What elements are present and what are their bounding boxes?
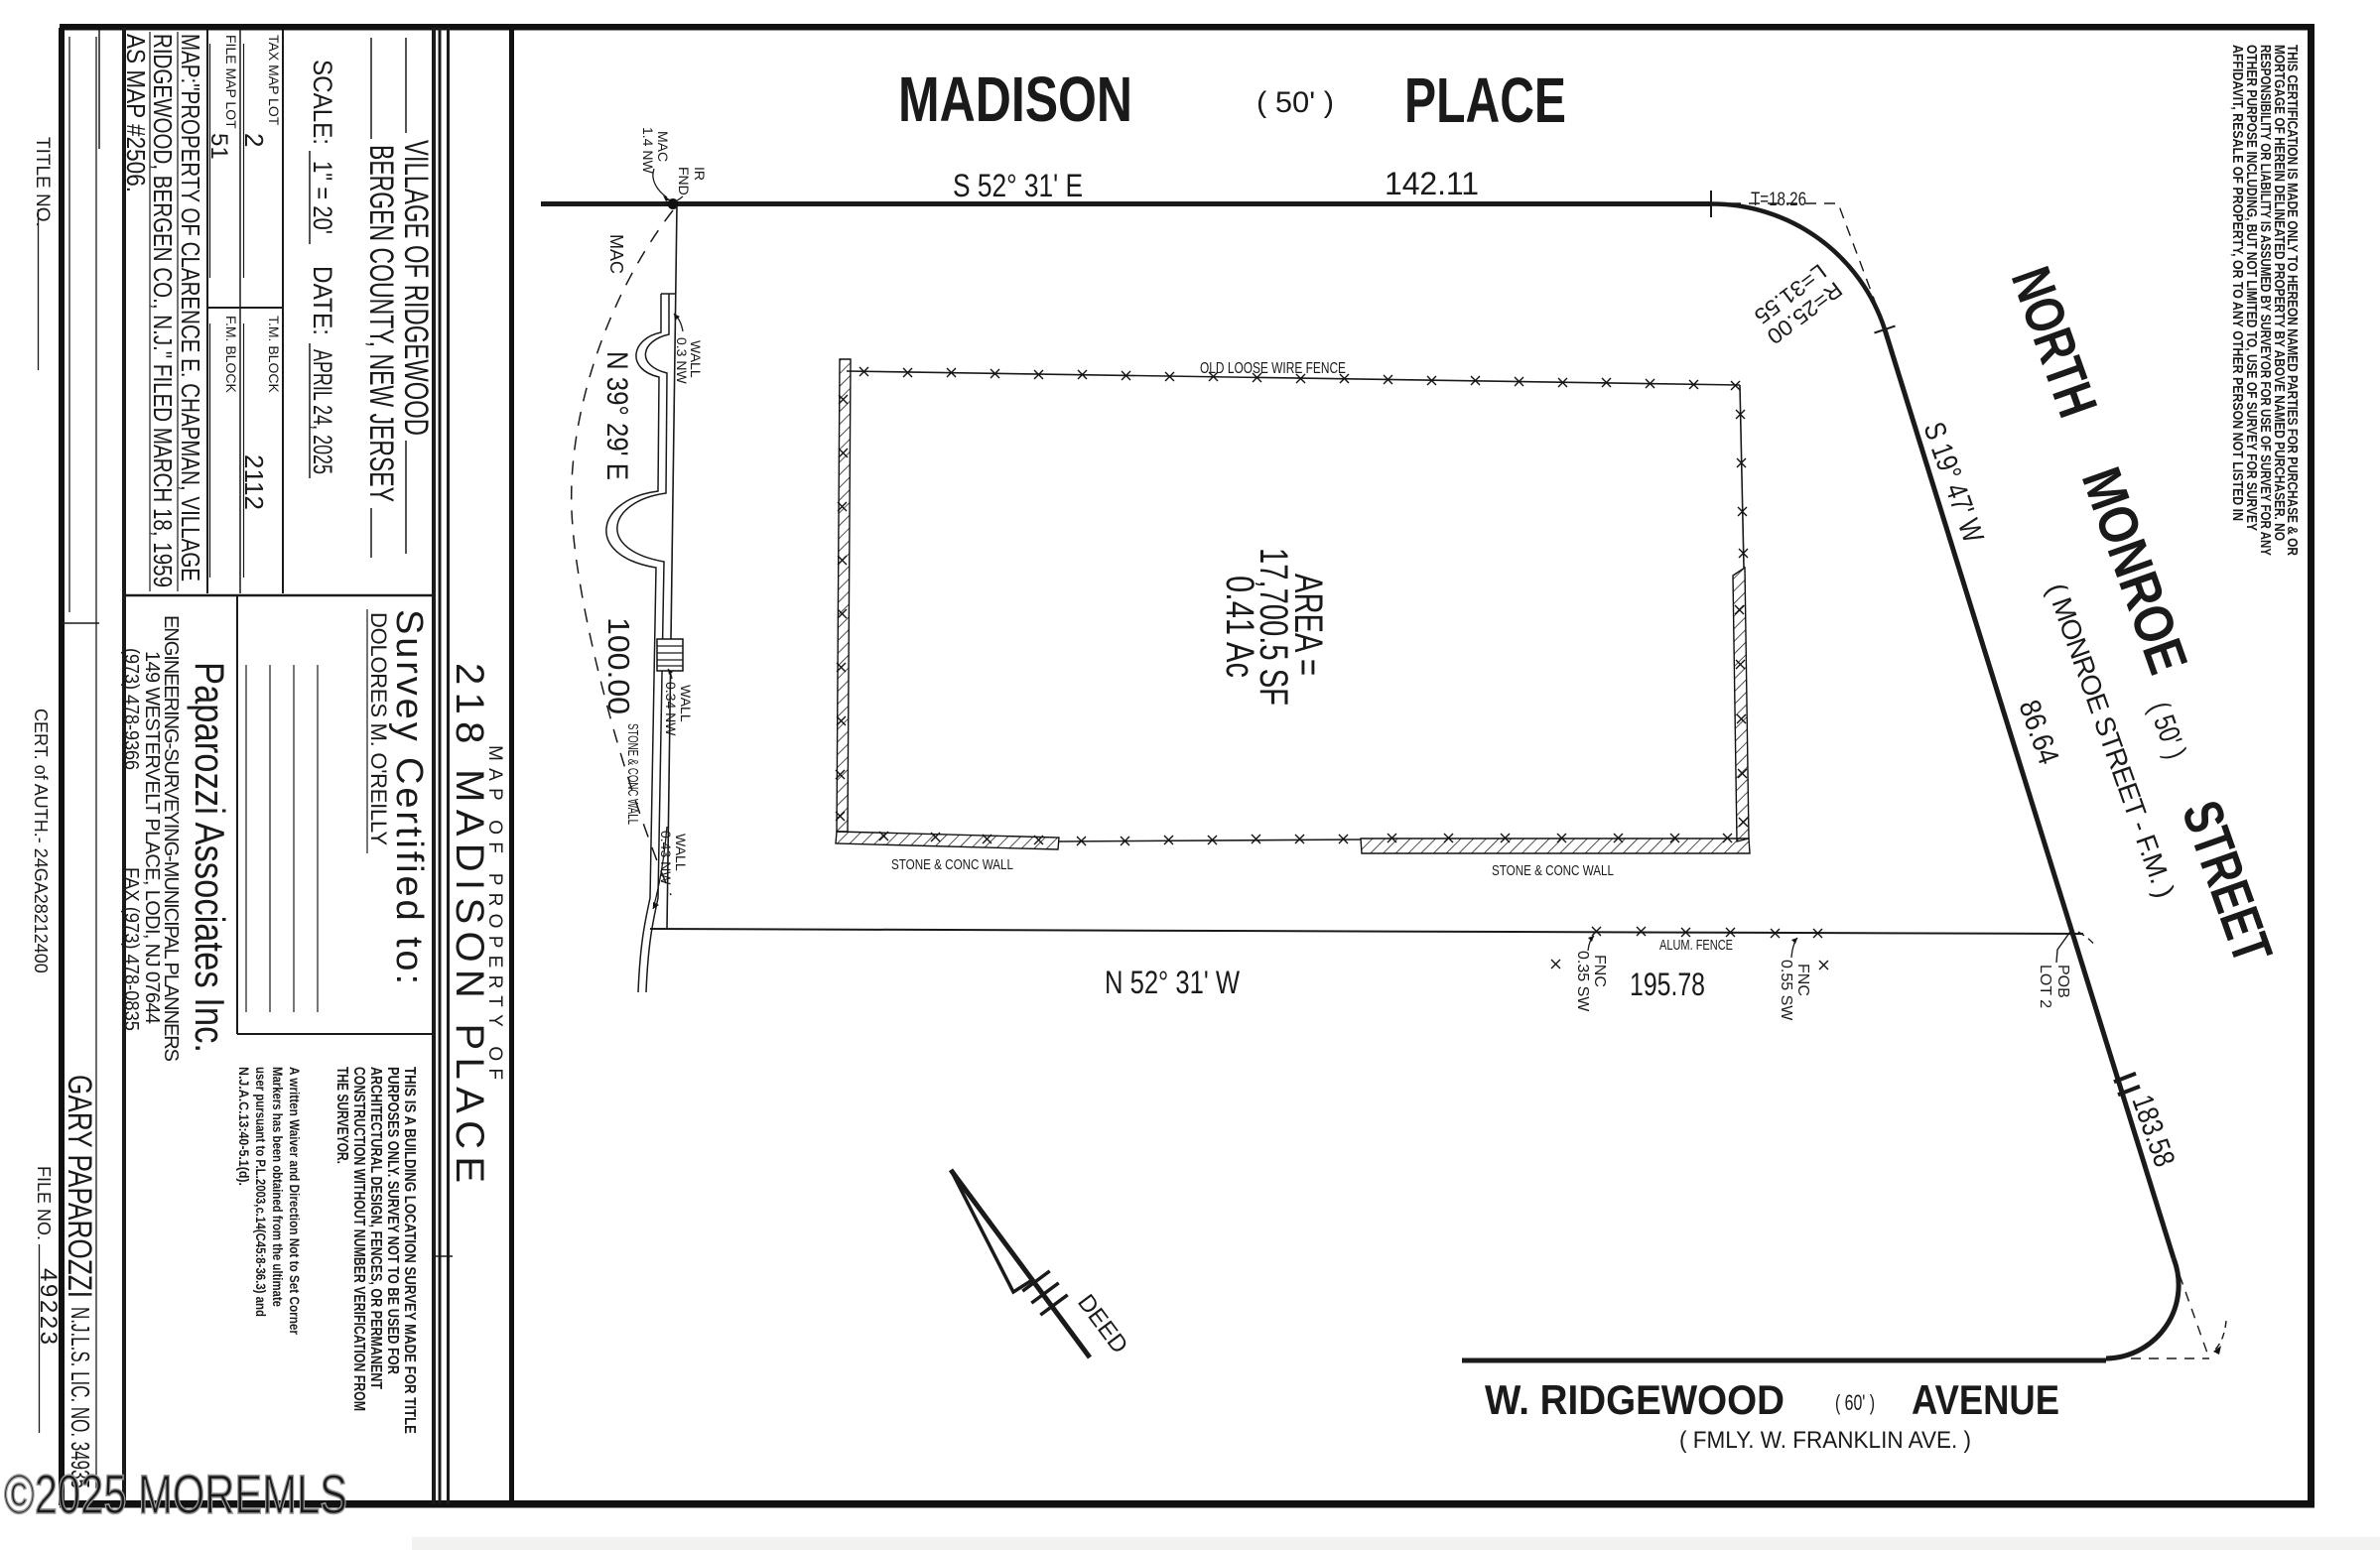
svg-text:1" = 20': 1" = 20' [308, 161, 337, 234]
svg-text:N.J.A.C.13:40-5.1(d).: N.J.A.C.13:40-5.1(d). [236, 1067, 251, 1186]
svg-text:AFFIDAVIT, RESALE OF PROPERTY,: AFFIDAVIT, RESALE OF PROPERTY, OR TO ANY… [2229, 45, 2246, 521]
svg-text:OLD LOOSE WIRE FENCE: OLD LOOSE WIRE FENCE [1200, 360, 1346, 377]
svg-text:THIS IS A BUILDING LOCATION SU: THIS IS A BUILDING LOCATION SURVEY MADE … [401, 1067, 418, 1434]
svg-text:100.00: 100.00 [601, 617, 636, 714]
svg-text:DATE:: DATE: [308, 266, 337, 335]
svg-text:ARCHITECTURAL DESIGN, FENCES,: ARCHITECTURAL DESIGN, FENCES, OR PERMANE… [367, 1067, 384, 1389]
svg-text:IR: IR [692, 167, 708, 181]
svg-text:MAP:"PROPERTY OF CLARENCE E. C: MAP:"PROPERTY OF CLARENCE E. CHAPMAN, VI… [176, 34, 205, 581]
svg-text:THE SURVEYOR.: THE SURVEYOR. [333, 1067, 350, 1164]
svg-text:T.M. BLOCK: T.M. BLOCK [266, 316, 282, 393]
svg-text:N 39° 29' E: N 39° 29' E [600, 351, 633, 480]
svg-text:GARY PAPAROZZI: GARY PAPAROZZI [61, 1075, 98, 1298]
svg-text:WALL: WALL [673, 834, 689, 871]
svg-text:POB: POB [2054, 965, 2071, 998]
svg-text:STONE & CONC WALL: STONE & CONC WALL [891, 856, 1013, 873]
svg-text:CONSTRUCTION WITHOUT NUMBER VE: CONSTRUCTION WITHOUT NUMBER VERIFICATION… [350, 1067, 367, 1411]
svg-text:0.41 Ac: 0.41 Ac [1218, 576, 1261, 678]
svg-text:PLACE: PLACE [1404, 65, 1566, 136]
svg-text:FND: FND [676, 167, 692, 195]
svg-text:DOLORES M. O'REILLY: DOLORES M. O'REILLY [366, 612, 391, 845]
svg-text:Survey Certified to:: Survey Certified to: [388, 609, 430, 984]
svg-text:STONE & CONC WALL: STONE & CONC WALL [1492, 862, 1614, 879]
svg-text:ALUM. FENCE: ALUM. FENCE [1659, 937, 1733, 954]
svg-text:( 60' ): ( 60' ) [1835, 1390, 1875, 1415]
svg-text:SCALE:: SCALE: [308, 60, 337, 145]
svg-text:BERGEN COUNTY, NEW JERSEY: BERGEN COUNTY, NEW JERSEY [362, 145, 400, 502]
svg-text:N 52° 31' W: N 52° 31' W [1105, 965, 1241, 1000]
svg-text:( 50' ): ( 50' ) [1256, 86, 1334, 119]
svg-text:W. RIDGEWOOD: W. RIDGEWOOD [1485, 1376, 1785, 1423]
svg-text:APRIL 24, 2025: APRIL 24, 2025 [308, 349, 337, 474]
svg-text:1.4 NW: 1.4 NW [640, 127, 656, 174]
svg-text:MADISON: MADISON [898, 64, 1132, 135]
svg-text:VILLAGE OF RIDGEWOOD: VILLAGE OF RIDGEWOOD [397, 140, 435, 436]
svg-text:TAX MAP LOT: TAX MAP LOT [266, 35, 282, 126]
svg-text:PURPOSES ONLY. SURVEY NOT TO B: PURPOSES ONLY. SURVEY NOT TO BE USED FOR [384, 1067, 401, 1374]
svg-text:(973) 478-9366: (973) 478-9366 [120, 648, 142, 770]
svg-text:FNC: FNC [1794, 964, 1811, 996]
svg-text:AVENUE: AVENUE [1912, 1376, 2059, 1423]
svg-text:MAC: MAC [655, 131, 671, 162]
svg-text:T=18.26: T=18.26 [1751, 190, 1806, 210]
svg-text:142.11: 142.11 [1385, 166, 1479, 201]
svg-text:TITLE NO.: TITLE NO. [32, 137, 53, 227]
svg-text:N.J.L.S. LIC. NO. 34935: N.J.L.S. LIC. NO. 34935 [66, 1307, 95, 1488]
svg-text:user pursuant to P.L.2003,c.14: user pursuant to P.L.2003,c.14(C45:8-36.… [253, 1067, 268, 1317]
svg-text:LOT 2: LOT 2 [2037, 965, 2053, 1008]
svg-text:MAC: MAC [606, 234, 626, 274]
svg-text:©2025 MOREMLS: ©2025 MOREMLS [4, 1463, 347, 1525]
svg-text:0.3 NW: 0.3 NW [674, 337, 690, 384]
svg-text:Paparozzi Associates Inc.: Paparozzi Associates Inc. [187, 662, 233, 1053]
svg-text:FAX (973) 478-0835: FAX (973) 478-0835 [120, 867, 142, 1031]
svg-text:195.78: 195.78 [1630, 967, 1705, 1002]
svg-text:F.M. BLOCK: F.M. BLOCK [223, 316, 239, 393]
svg-text:FILE MAP LOT: FILE MAP LOT [223, 35, 239, 129]
svg-text:CERT. of AUTH.- 24GA28212400: CERT. of AUTH.- 24GA28212400 [31, 709, 51, 973]
svg-text:Markers has been obtained from: Markers has been obtained from the ultim… [270, 1067, 285, 1307]
svg-text:FILE NO.: FILE NO. [34, 1166, 54, 1240]
svg-text:STONE & CONC WALL: STONE & CONC WALL [624, 723, 641, 825]
svg-text:( FMLY. W. FRANKLIN AVE. ): ( FMLY. W. FRANKLIN AVE. ) [1679, 1427, 1971, 1454]
svg-text:A written Waiver and Direction: A written Waiver and Direction Not to Se… [287, 1067, 302, 1336]
svg-text:AS MAP #2506.: AS MAP #2506. [121, 34, 151, 193]
svg-text:FNC: FNC [1591, 955, 1608, 987]
svg-text:218 MADISON PLACE: 218 MADISON PLACE [448, 663, 491, 1183]
svg-text:149 WESTERVELT PLACE, LODI, NJ: 149 WESTERVELT PLACE, LODI, NJ 07644 [141, 651, 163, 1024]
svg-text:RIDGEWOOD, BERGEN CO., N.J." F: RIDGEWOOD, BERGEN CO., N.J." FILED MARCH… [148, 34, 178, 587]
svg-text:0.55 SW: 0.55 SW [1778, 960, 1794, 1021]
svg-text:0.34 NW: 0.34 NW [663, 682, 679, 736]
svg-text:0.35 SW: 0.35 SW [1574, 951, 1591, 1012]
svg-text:S 52° 31' E: S 52° 31' E [953, 168, 1083, 203]
svg-text:WALL: WALL [678, 685, 694, 722]
